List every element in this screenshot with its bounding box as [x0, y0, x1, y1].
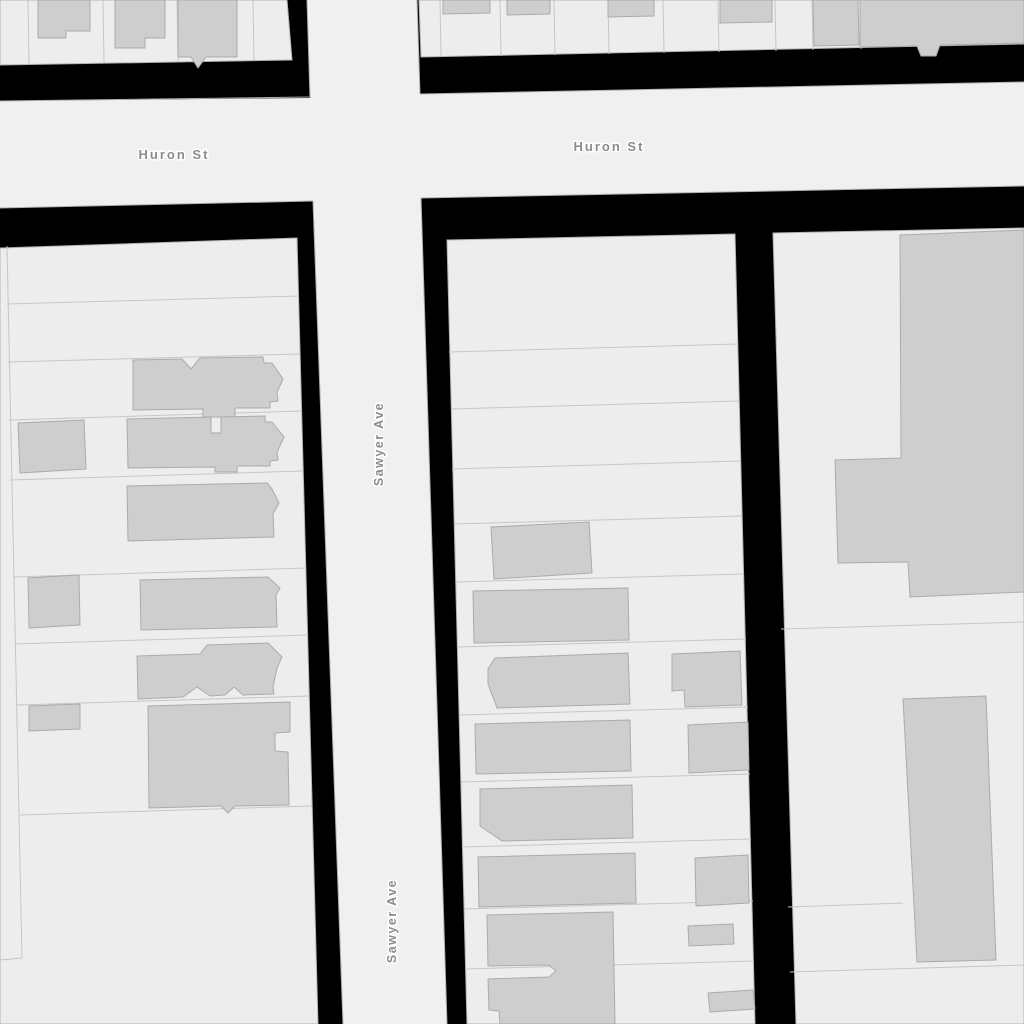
building-footprint	[813, 0, 859, 46]
building-footprint	[491, 522, 592, 579]
building-footprint	[140, 577, 280, 630]
building-footprint	[148, 702, 290, 813]
building-footprint	[608, 0, 654, 17]
building-footprint	[127, 483, 279, 541]
building-footprint	[708, 990, 755, 1012]
building-footprint	[488, 653, 630, 708]
building-footprint	[29, 704, 80, 731]
block-south-west	[0, 238, 318, 1024]
building-footprint	[478, 853, 636, 907]
street-label-sawyer-ave-south: Sawyer Ave	[385, 879, 399, 963]
building-footprint	[695, 855, 749, 906]
building-footprint	[133, 357, 283, 417]
street-label-sawyer-ave-north: Sawyer Ave	[372, 402, 386, 486]
building-footprint	[507, 0, 550, 15]
building-footprint	[720, 0, 772, 23]
street-label-huron-st-west: Huron St	[139, 147, 210, 162]
building-footprint	[688, 722, 749, 773]
map-viewport[interactable]: Huron St Huron St Sawyer Ave Sawyer Ave	[0, 0, 1024, 1024]
building-footprint	[903, 696, 996, 962]
building-footprint	[473, 588, 629, 643]
map-canvas[interactable]: Huron St Huron St Sawyer Ave Sawyer Ave	[0, 0, 1024, 1024]
street-label-huron-st-east: Huron St	[574, 139, 645, 154]
building-footprint	[18, 420, 86, 473]
building-footprint	[688, 924, 734, 946]
building-footprint	[480, 785, 633, 841]
building-footprint	[475, 720, 631, 774]
building-footprint	[127, 416, 284, 472]
building-footprint	[28, 575, 80, 628]
building-footprint	[443, 0, 490, 14]
